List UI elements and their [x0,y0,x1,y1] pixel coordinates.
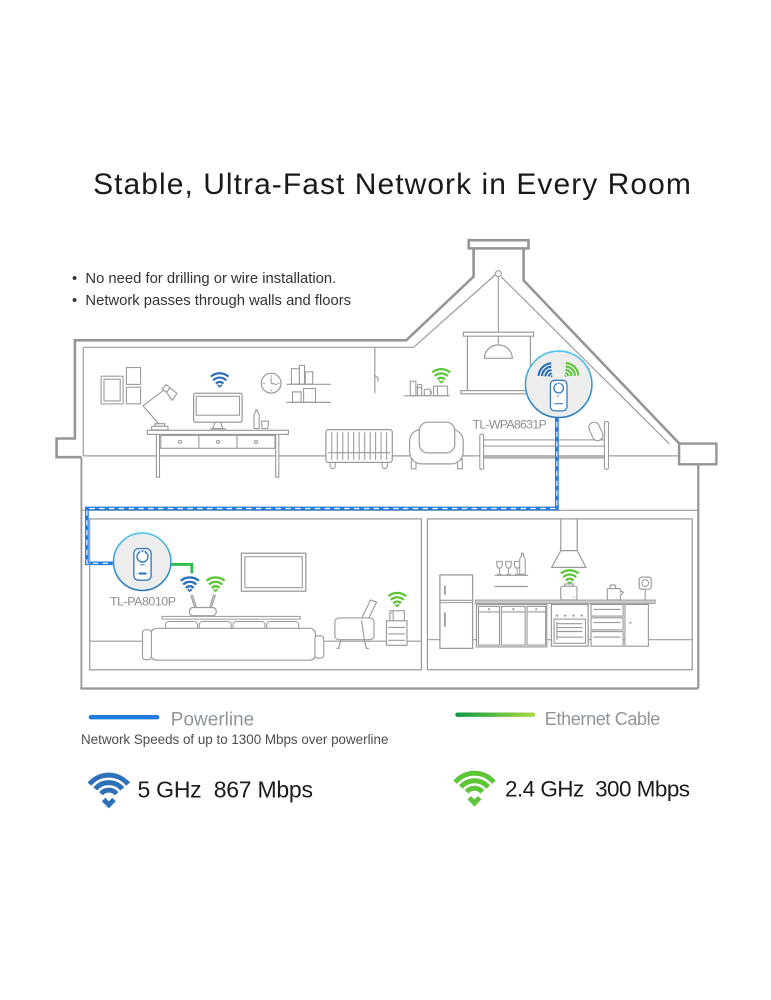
svg-text:2.4 GHz 300 Mbps: 2.4 GHz 300 Mbps [505,777,690,802]
svg-text:Powerline: Powerline [171,710,254,731]
svg-text:Ethernet Cable: Ethernet Cable [545,709,661,729]
svg-text:Network Speeds of up to 1300 M: Network Speeds of up to 1300 Mbps over p… [81,732,388,747]
svg-text:5 GHz 867 Mbps: 5 GHz 867 Mbps [138,777,313,803]
svg-text:TL-PA8010P: TL-PA8010P [110,594,176,608]
svg-text:TL-WPA8631P: TL-WPA8631P [473,418,547,432]
